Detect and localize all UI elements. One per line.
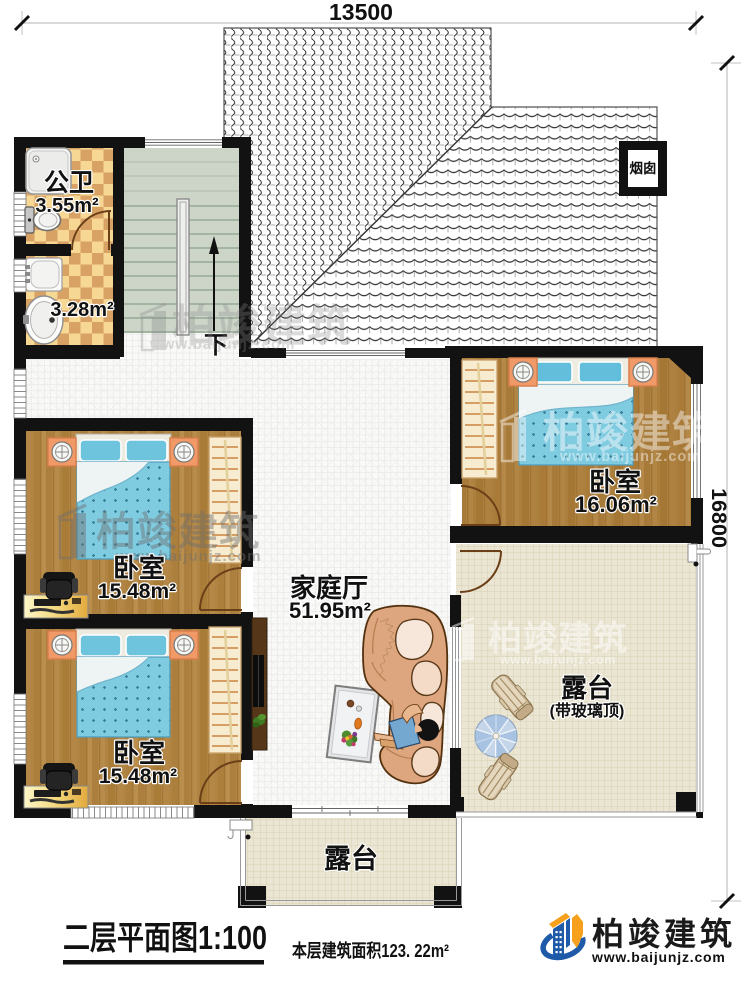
svg-text:16800: 16800: [707, 488, 731, 548]
svg-text:露台: 露台: [324, 843, 378, 874]
svg-text:露台: 露台: [561, 673, 613, 703]
svg-text:二层平面图1:100: 二层平面图1:100: [63, 919, 267, 956]
svg-text:www.baijunjz.com: www.baijunjz.com: [499, 653, 616, 667]
svg-text:卧室: 卧室: [113, 738, 165, 768]
svg-text:www.baijunjz.com: www.baijunjz.com: [591, 949, 726, 965]
svg-text:51.95m²: 51.95m²: [289, 598, 371, 623]
svg-text:柏竣建筑: 柏竣建筑: [592, 916, 736, 952]
svg-text:15.48m²: 15.48m²: [99, 765, 177, 788]
svg-text:16.06m²: 16.06m²: [575, 492, 657, 517]
svg-text:本层建筑面积123. 22m²: 本层建筑面积123. 22m²: [292, 940, 449, 961]
svg-text:3.28m²: 3.28m²: [50, 299, 114, 321]
svg-text:公卫: 公卫: [44, 169, 94, 197]
svg-text:www.baijunjz.com: www.baijunjz.com: [149, 336, 295, 353]
svg-text:15.48m²: 15.48m²: [98, 580, 176, 603]
svg-text:www.baijunjz.com: www.baijunjz.com: [559, 449, 701, 465]
svg-text:3.55m²: 3.55m²: [35, 195, 99, 217]
svg-text:卧室: 卧室: [113, 553, 165, 583]
svg-text:13500: 13500: [329, 0, 393, 25]
svg-text:(带玻璃顶): (带玻璃顶): [550, 701, 625, 720]
svg-text:烟囱: 烟囱: [630, 160, 657, 176]
